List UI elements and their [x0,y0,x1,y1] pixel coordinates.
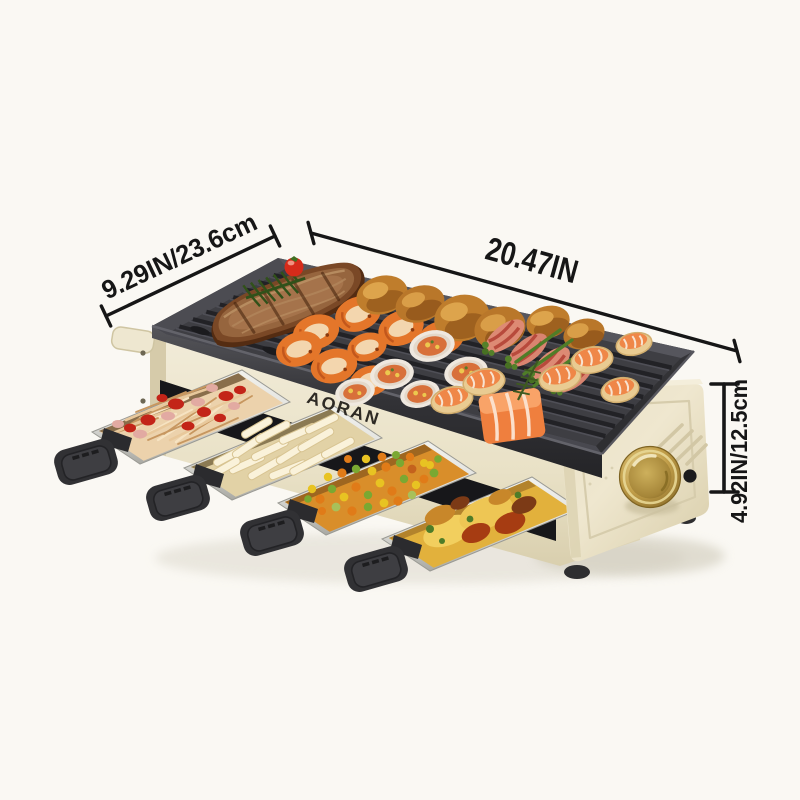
svg-text:4.92IN/12.5cm: 4.92IN/12.5cm [726,379,752,523]
